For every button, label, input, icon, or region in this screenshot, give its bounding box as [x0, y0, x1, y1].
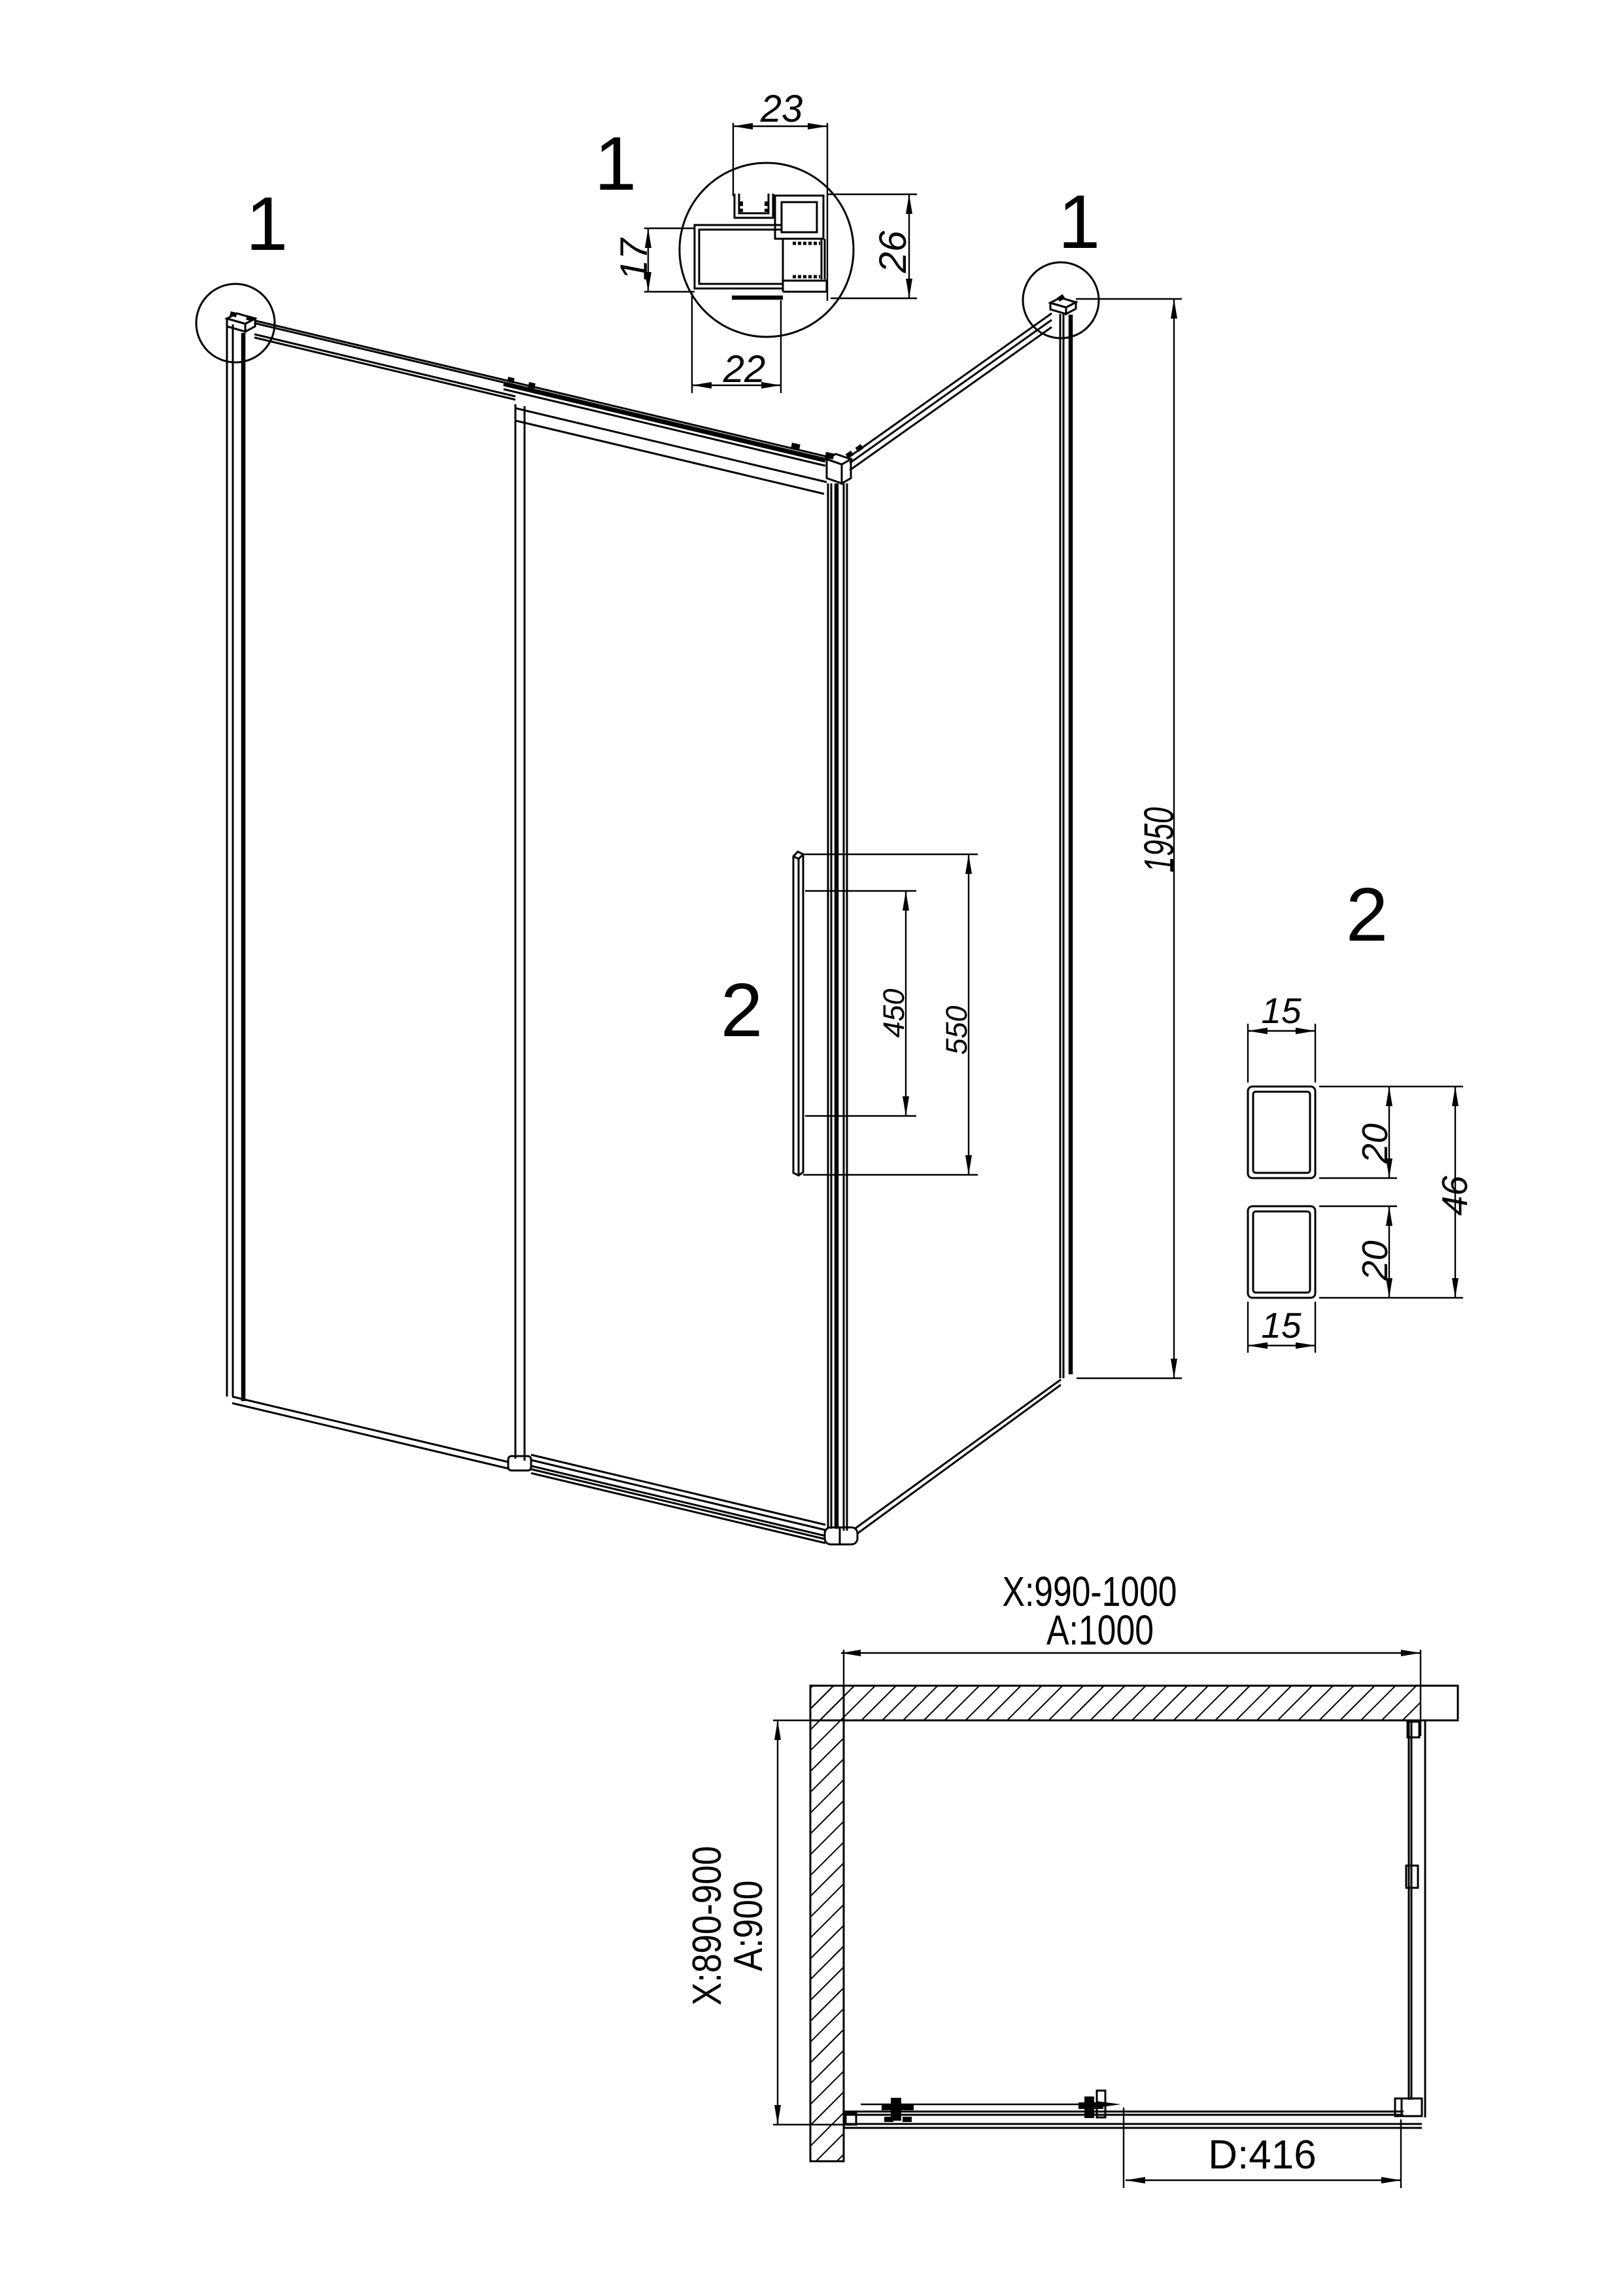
svg-text:1: 1 [1058, 179, 1101, 264]
svg-text:20: 20 [1355, 1240, 1395, 1281]
svg-text:15: 15 [1261, 1305, 1302, 1346]
svg-text:A:1000: A:1000 [1046, 1607, 1154, 1654]
svg-text:22: 22 [723, 348, 766, 391]
svg-text:D:416: D:416 [1208, 2132, 1316, 2178]
svg-text:2: 2 [1346, 872, 1389, 957]
svg-text:26: 26 [872, 230, 914, 273]
svg-text:20: 20 [1355, 1123, 1395, 1164]
svg-text:A:900: A:900 [726, 1881, 771, 1972]
svg-text:1950: 1950 [1135, 807, 1182, 873]
svg-text:23: 23 [760, 88, 803, 130]
svg-text:450: 450 [877, 988, 910, 1037]
svg-text:15: 15 [1261, 990, 1302, 1031]
svg-text:550: 550 [940, 1005, 973, 1054]
svg-text:1: 1 [595, 121, 637, 206]
svg-text:1: 1 [246, 181, 288, 266]
svg-text:X:890-900: X:890-900 [685, 1846, 730, 2006]
svg-text:2: 2 [721, 967, 763, 1052]
svg-text:17: 17 [613, 237, 655, 281]
svg-text:46: 46 [1434, 1175, 1475, 1216]
